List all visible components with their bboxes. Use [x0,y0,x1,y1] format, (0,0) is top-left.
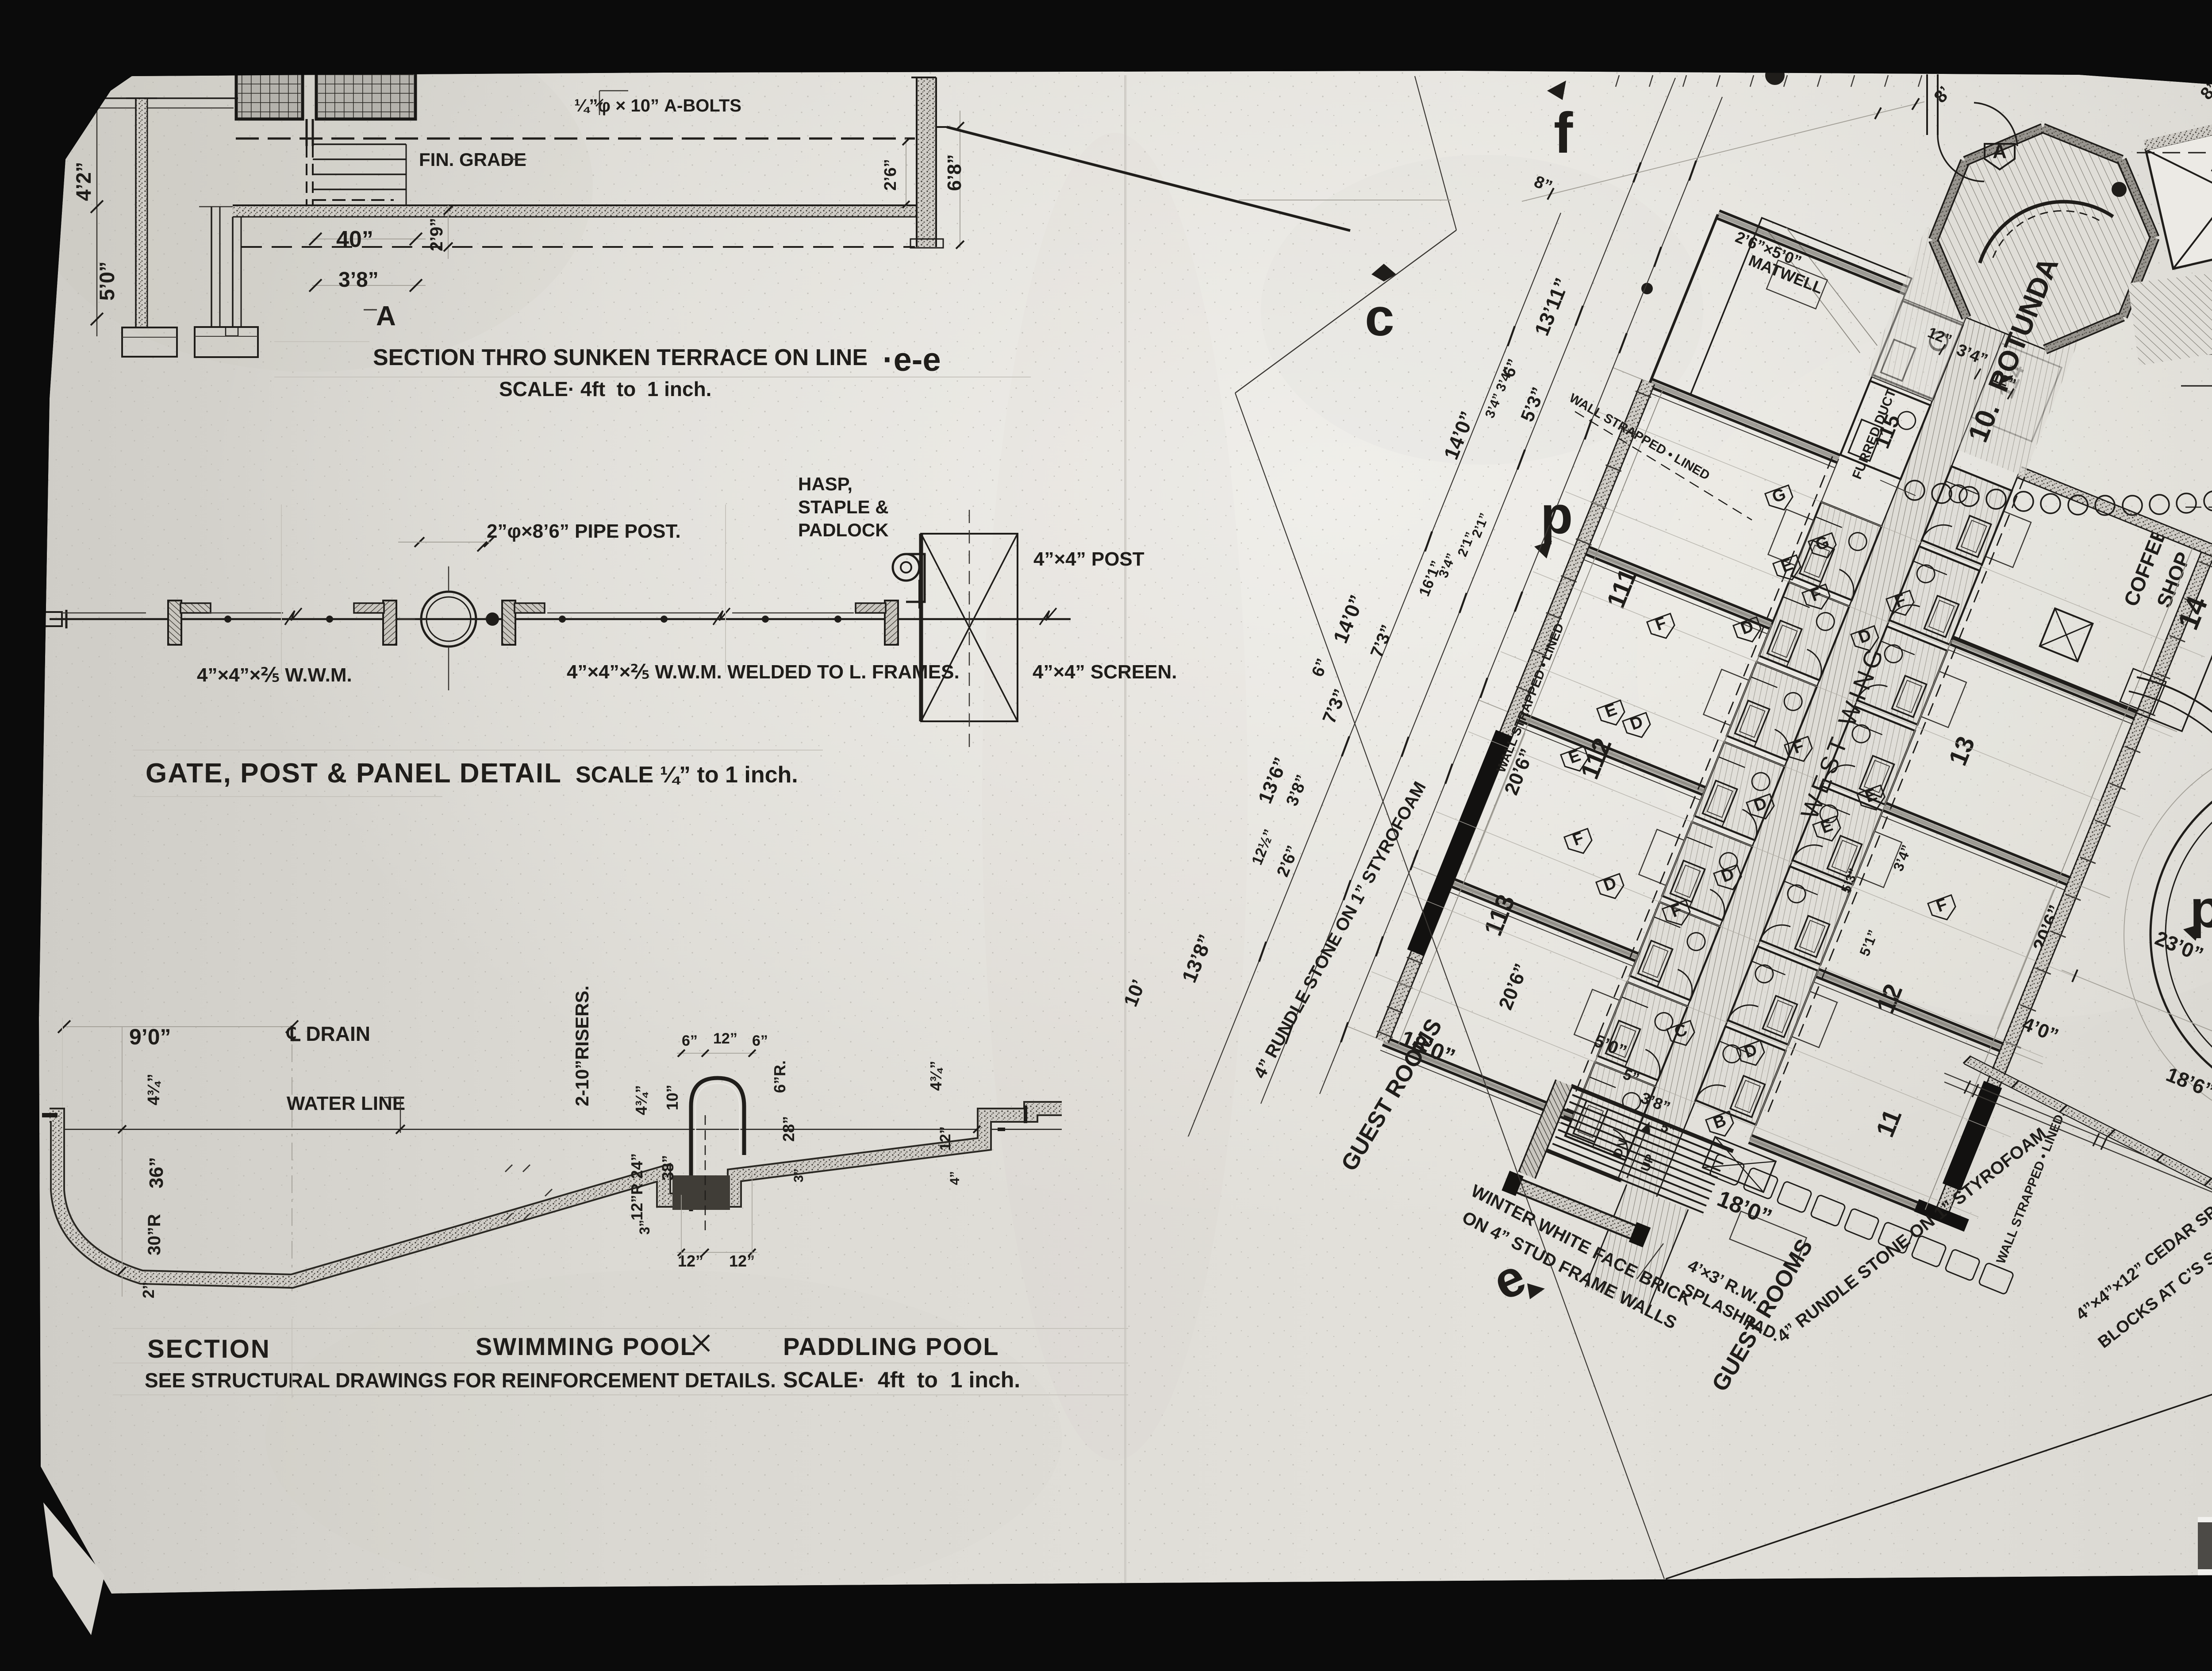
svg-text:6”: 6” [682,1032,698,1049]
svg-text:4”×4”×⅖ W.W.M. WELDED TO L. FR: 4”×4”×⅖ W.W.M. WELDED TO L. FRAMES. [567,661,960,683]
svg-text:6”R.: 6”R. [771,1060,789,1093]
svg-text:SCALE· 4ft to 1 inch.: SCALE· 4ft to 1 inch. [783,1367,1020,1392]
svg-text:3”: 3” [791,1168,806,1182]
svg-text:A: A [376,301,396,331]
svg-text:12”R 24”: 12”R 24” [628,1153,646,1221]
svg-text:2”φ×8’6” PIPE POST.: 2”φ×8’6” PIPE POST. [487,520,681,542]
svg-text:SEE STRUCTURAL DRAWINGS FOR RE: SEE STRUCTURAL DRAWINGS FOR REINFORCEMEN… [145,1369,776,1392]
svg-text:4¾”: 4¾” [145,1074,163,1105]
svg-text:HASP,: HASP, [798,474,853,494]
svg-text:30”R: 30”R [145,1214,164,1255]
svg-text:6”: 6” [752,1032,768,1049]
svg-text:A: A [1993,141,2007,162]
svg-text:SWIMMING POOL: SWIMMING POOL [476,1332,696,1360]
svg-text:12”: 12” [713,1030,737,1047]
svg-text:40”: 40” [336,227,373,252]
svg-text:GATE, POST & PANEL DETAIL: GATE, POST & PANEL DETAIL [146,758,562,789]
svg-text:·e-e: ·e-e [883,341,941,378]
svg-text:2’6”: 2’6” [881,159,900,191]
svg-text:WATER LINE: WATER LINE [287,1093,405,1114]
svg-text:10”: 10” [663,1085,681,1110]
svg-text:PADLOCK: PADLOCK [798,520,889,540]
svg-text:2”: 2” [139,1282,157,1298]
svg-text:STAPLE &: STAPLE & [798,497,889,517]
svg-text:4’2”: 4’2” [72,162,95,201]
svg-text:PADDLING POOL: PADDLING POOL [783,1332,999,1360]
svg-text:SECTION: SECTION [147,1335,271,1363]
svg-text:4”×4” POST: 4”×4” POST [1033,548,1144,570]
svg-text:4”×4”×⅖ W.W.M.: 4”×4”×⅖ W.W.M. [197,664,352,686]
svg-text:28”: 28” [780,1116,798,1142]
svg-text:38”: 38” [659,1155,677,1181]
svg-text:2’9”: 2’9” [427,218,446,251]
svg-text:2-10”RISERS.: 2-10”RISERS. [572,986,592,1106]
svg-text:12”: 12” [937,1126,954,1151]
svg-text:4”: 4” [948,1171,962,1185]
svg-text:SECTION THRO SUNKEN TERRACE ON: SECTION THRO SUNKEN TERRACE ON LINE [373,345,868,370]
svg-text:36”: 36” [146,1157,167,1189]
svg-text:3’8”: 3’8” [338,268,379,292]
svg-text:4¾”: 4¾” [632,1085,650,1115]
svg-text:℄ DRAIN: ℄ DRAIN [286,1022,370,1045]
svg-text:6’8”: 6’8” [944,154,965,191]
svg-text:f: f [1554,100,1573,165]
svg-text:SCALE· 4ft to 1 inch.: SCALE· 4ft to 1 inch. [499,377,711,400]
svg-text:3”: 3” [637,1220,653,1235]
svg-text:9’0”: 9’0” [129,1024,171,1049]
svg-text:4”×4” SCREEN.: 4”×4” SCREEN. [1033,661,1177,683]
svg-text:c: c [1365,288,1394,347]
svg-text:4¾”: 4¾” [927,1061,945,1091]
svg-text:5’0”: 5’0” [95,262,119,301]
svg-text:SCALE ¼” to 1 inch.: SCALE ¼” to 1 inch. [576,762,798,788]
